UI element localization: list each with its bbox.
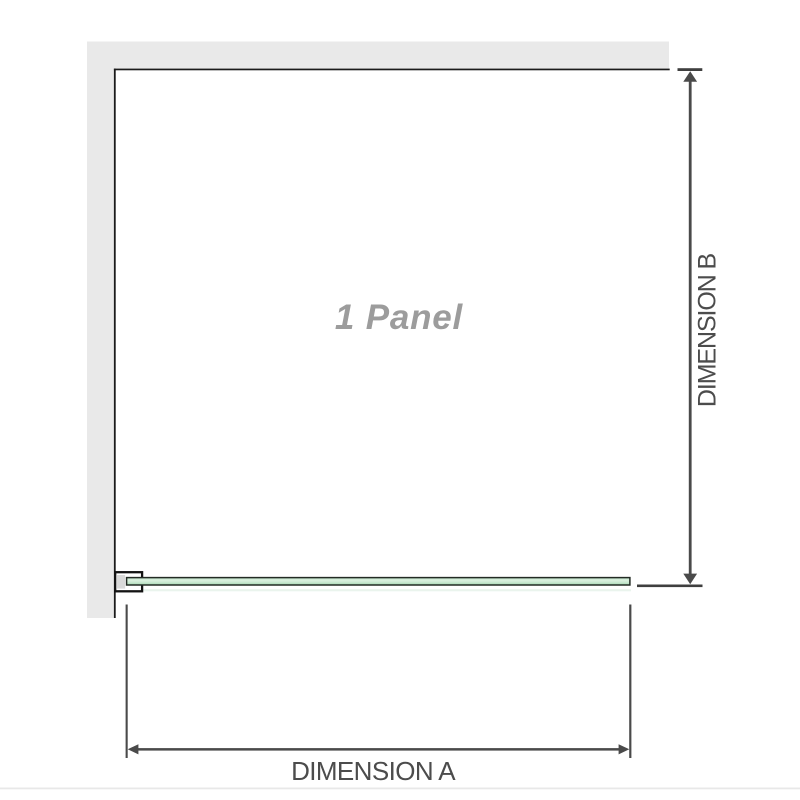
- svg-text:1 Panel: 1 Panel: [335, 298, 464, 337]
- svg-text:DIMENSION A: DIMENSION A: [291, 756, 456, 786]
- svg-text:DIMENSION B: DIMENSION B: [694, 253, 722, 407]
